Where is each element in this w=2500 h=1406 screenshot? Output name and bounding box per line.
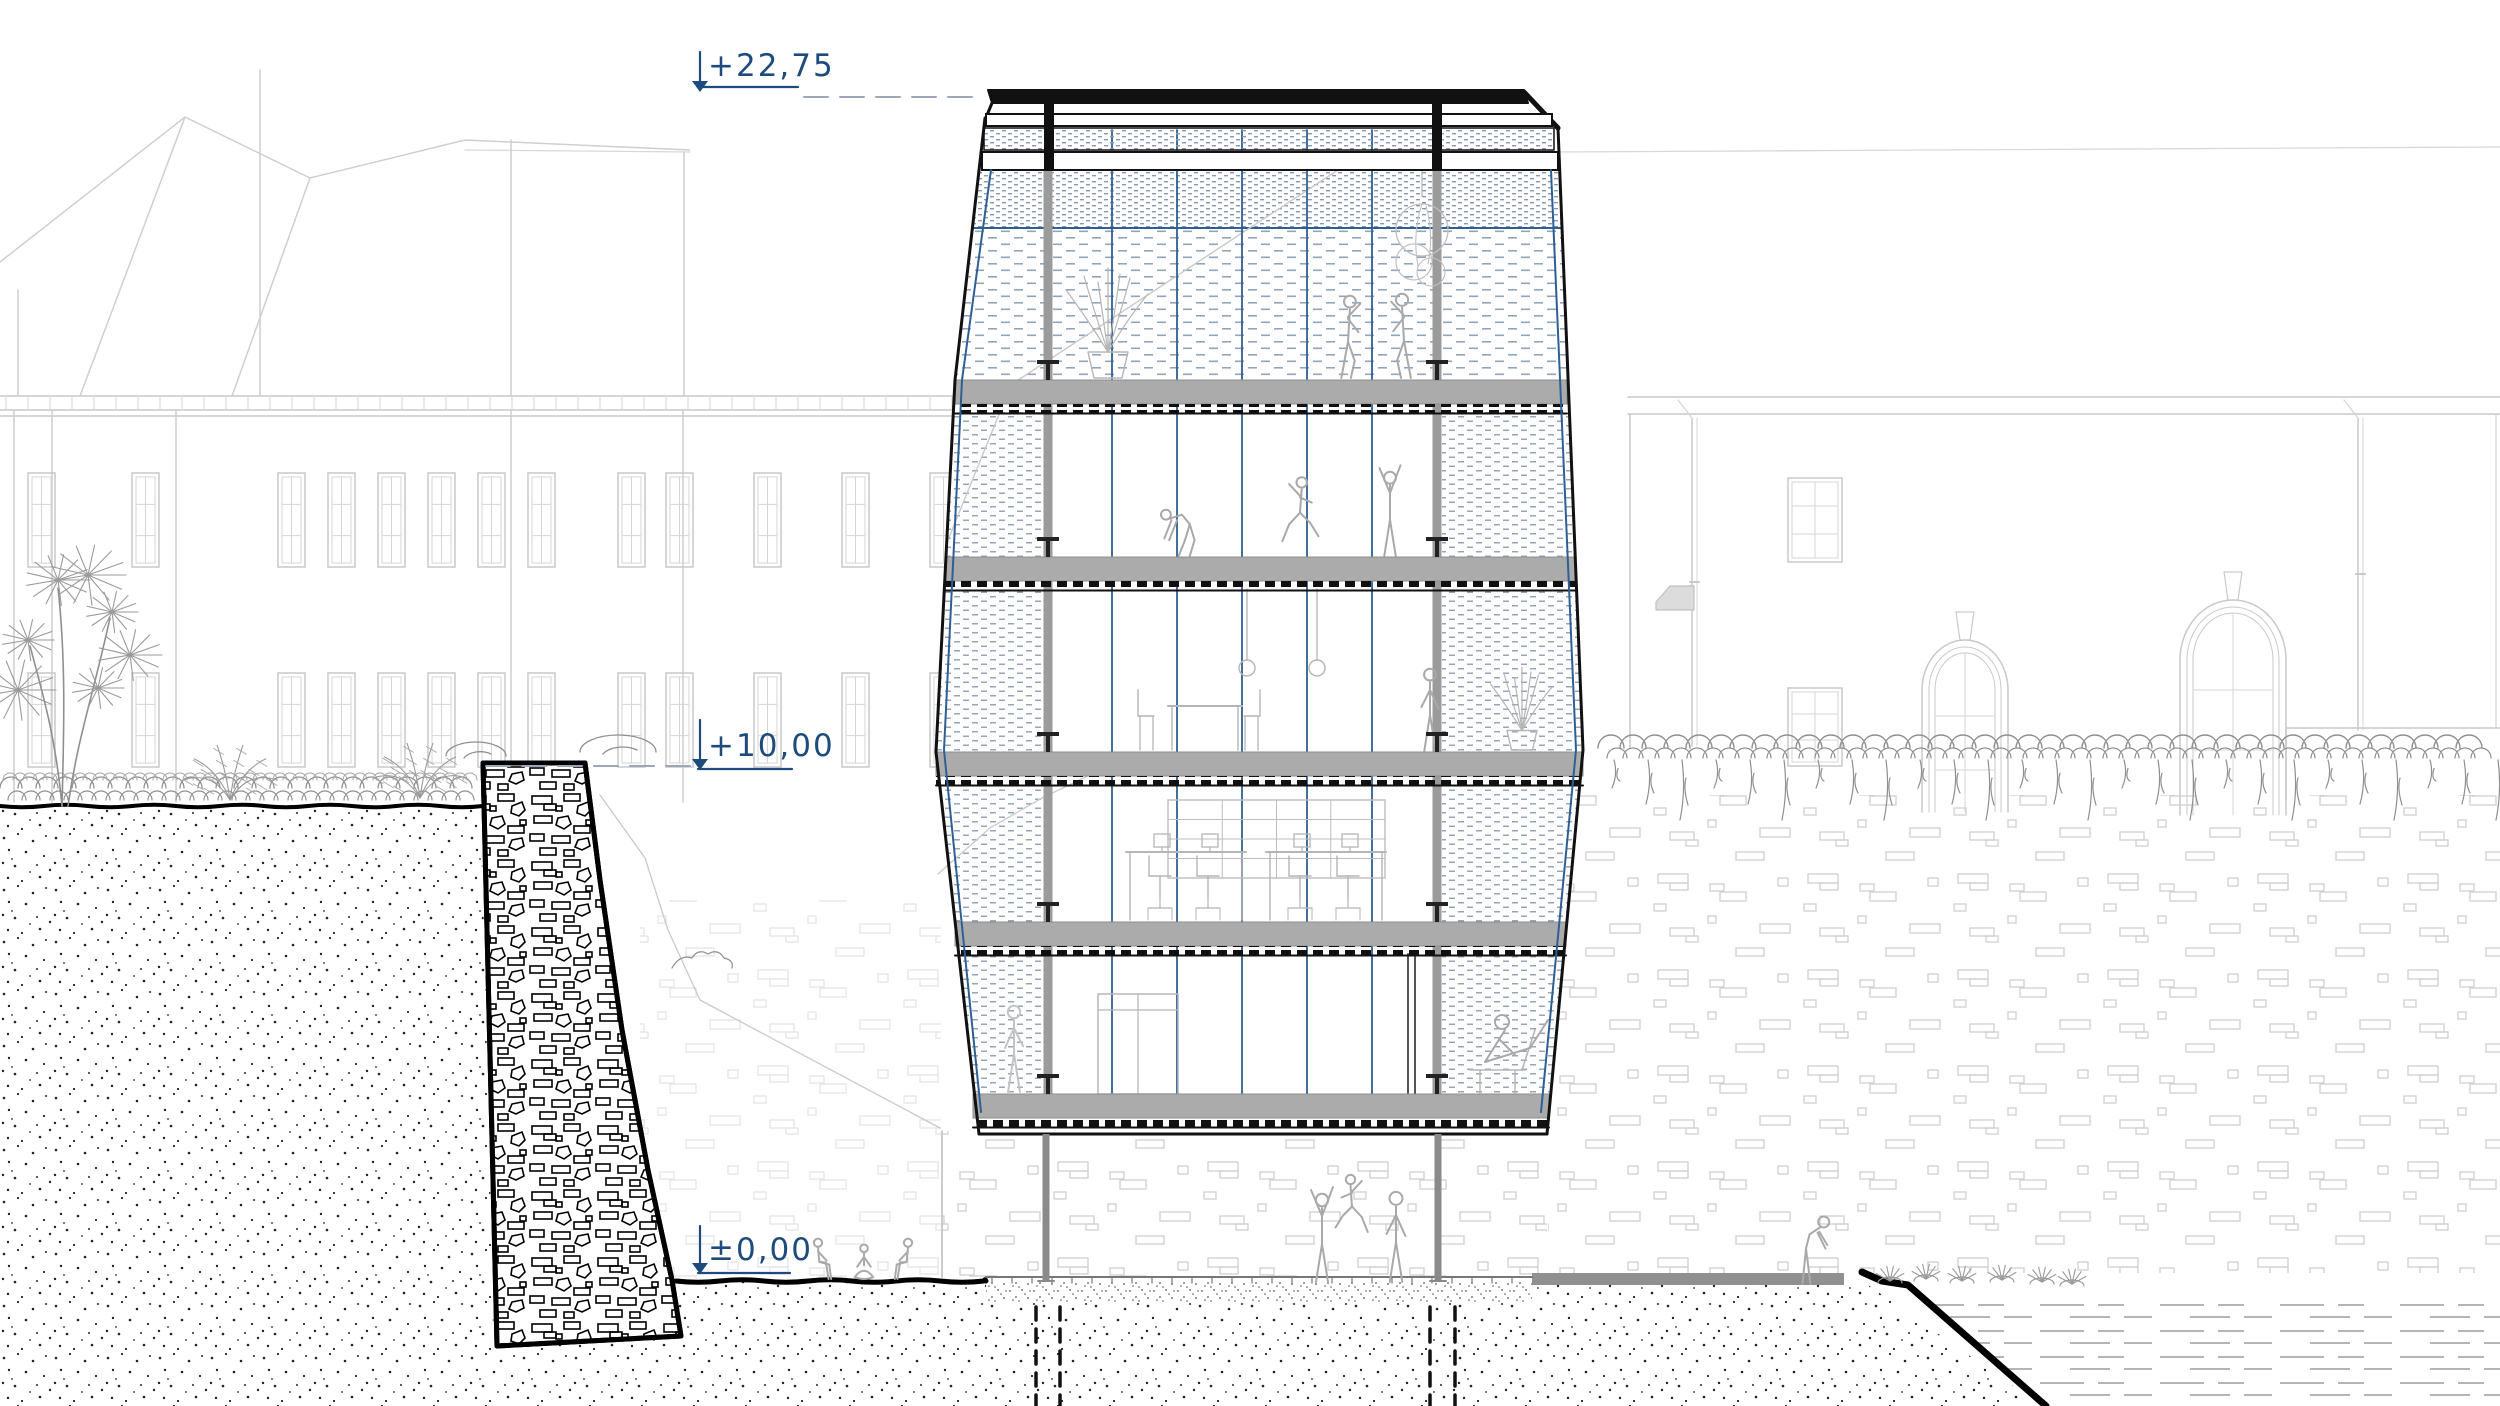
background-building-right [1628,397,2500,815]
section-drawing-canvas [0,0,2500,1406]
level-label-top: +22,75 [708,48,835,84]
level-label-ground: ±0,00 [708,1232,813,1268]
tower-section [936,90,1583,1134]
architectural-section-drawing: +22,75 +10,00 ±0,00 [0,0,2500,1406]
level-label-mid: +10,00 [708,728,835,764]
tower-roof [982,90,1558,170]
background-building-left [0,70,986,802]
